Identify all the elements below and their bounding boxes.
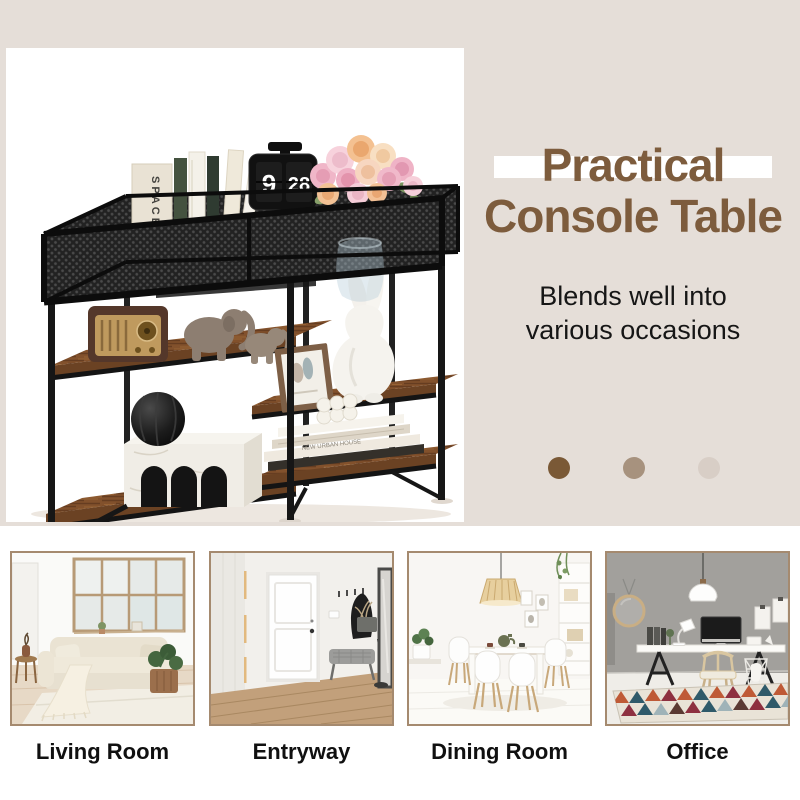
photo-living-room xyxy=(10,551,195,726)
entryway-scene xyxy=(211,553,392,724)
product-photo: NEW URBAN HOUSE xyxy=(6,48,464,522)
imac xyxy=(701,617,741,645)
vintage-radio xyxy=(88,306,168,362)
subtitle: Blends well into various occasions xyxy=(466,279,800,347)
bubble-candle xyxy=(317,394,357,424)
thermostat xyxy=(329,611,339,618)
subtitle-line1: Blends well into xyxy=(466,279,800,313)
flip-clock: 9 28 xyxy=(249,142,317,210)
hero-section: NEW URBAN HOUSE xyxy=(0,0,800,526)
window-mirror xyxy=(74,559,184,631)
dining-room-scene xyxy=(409,553,590,724)
clock-hour: 9 xyxy=(262,169,276,199)
headline: Practical Console Table xyxy=(466,140,800,242)
office-scene xyxy=(607,553,788,724)
photo-entryway xyxy=(209,551,394,726)
label-dining-room: Dining Room xyxy=(407,739,592,765)
book-spine-text: SPACE xyxy=(149,176,161,228)
console-table-illustration: NEW URBAN HOUSE xyxy=(6,48,464,522)
subtitle-line2: various occasions xyxy=(466,313,800,347)
photo-office xyxy=(605,551,790,726)
label-living-room: Living Room xyxy=(10,739,195,765)
carousel-dots xyxy=(548,457,720,479)
headline-line1: Practical xyxy=(466,140,800,191)
carousel-dot-1[interactable] xyxy=(548,457,570,479)
front-door xyxy=(266,572,320,682)
living-room-scene xyxy=(12,553,193,724)
headline-line2: Console Table xyxy=(466,191,800,242)
label-entryway: Entryway xyxy=(209,739,394,765)
carousel-dot-3[interactable] xyxy=(698,457,720,479)
sphere-decor xyxy=(131,392,185,446)
carousel-dot-2[interactable] xyxy=(623,457,645,479)
label-office: Office xyxy=(605,739,790,765)
mirror xyxy=(379,569,392,687)
arch-stand xyxy=(124,433,262,507)
photo-dining-room xyxy=(407,551,592,726)
